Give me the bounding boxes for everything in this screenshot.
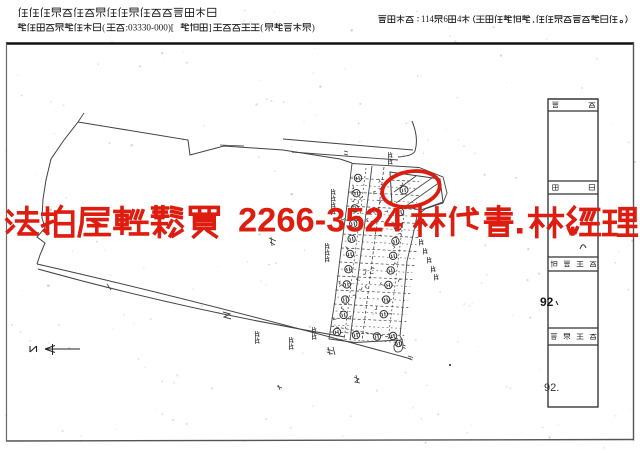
svg-text:92.: 92. — [544, 382, 559, 394]
svg-text:(: ( — [260, 23, 263, 33]
svg-text:]: ] — [209, 23, 212, 33]
svg-text:(: ( — [102, 23, 105, 33]
svg-text:6: 6 — [443, 14, 448, 24]
svg-text::03330-000)[: :03330-000)[ — [126, 23, 174, 33]
svg-text:4: 4 — [457, 14, 462, 24]
svg-text:92: 92 — [540, 295, 554, 309]
svg-text:): ) — [312, 23, 315, 33]
svg-text:2266-3524: 2266-3524 — [238, 202, 403, 240]
svg-text:114: 114 — [421, 14, 435, 24]
